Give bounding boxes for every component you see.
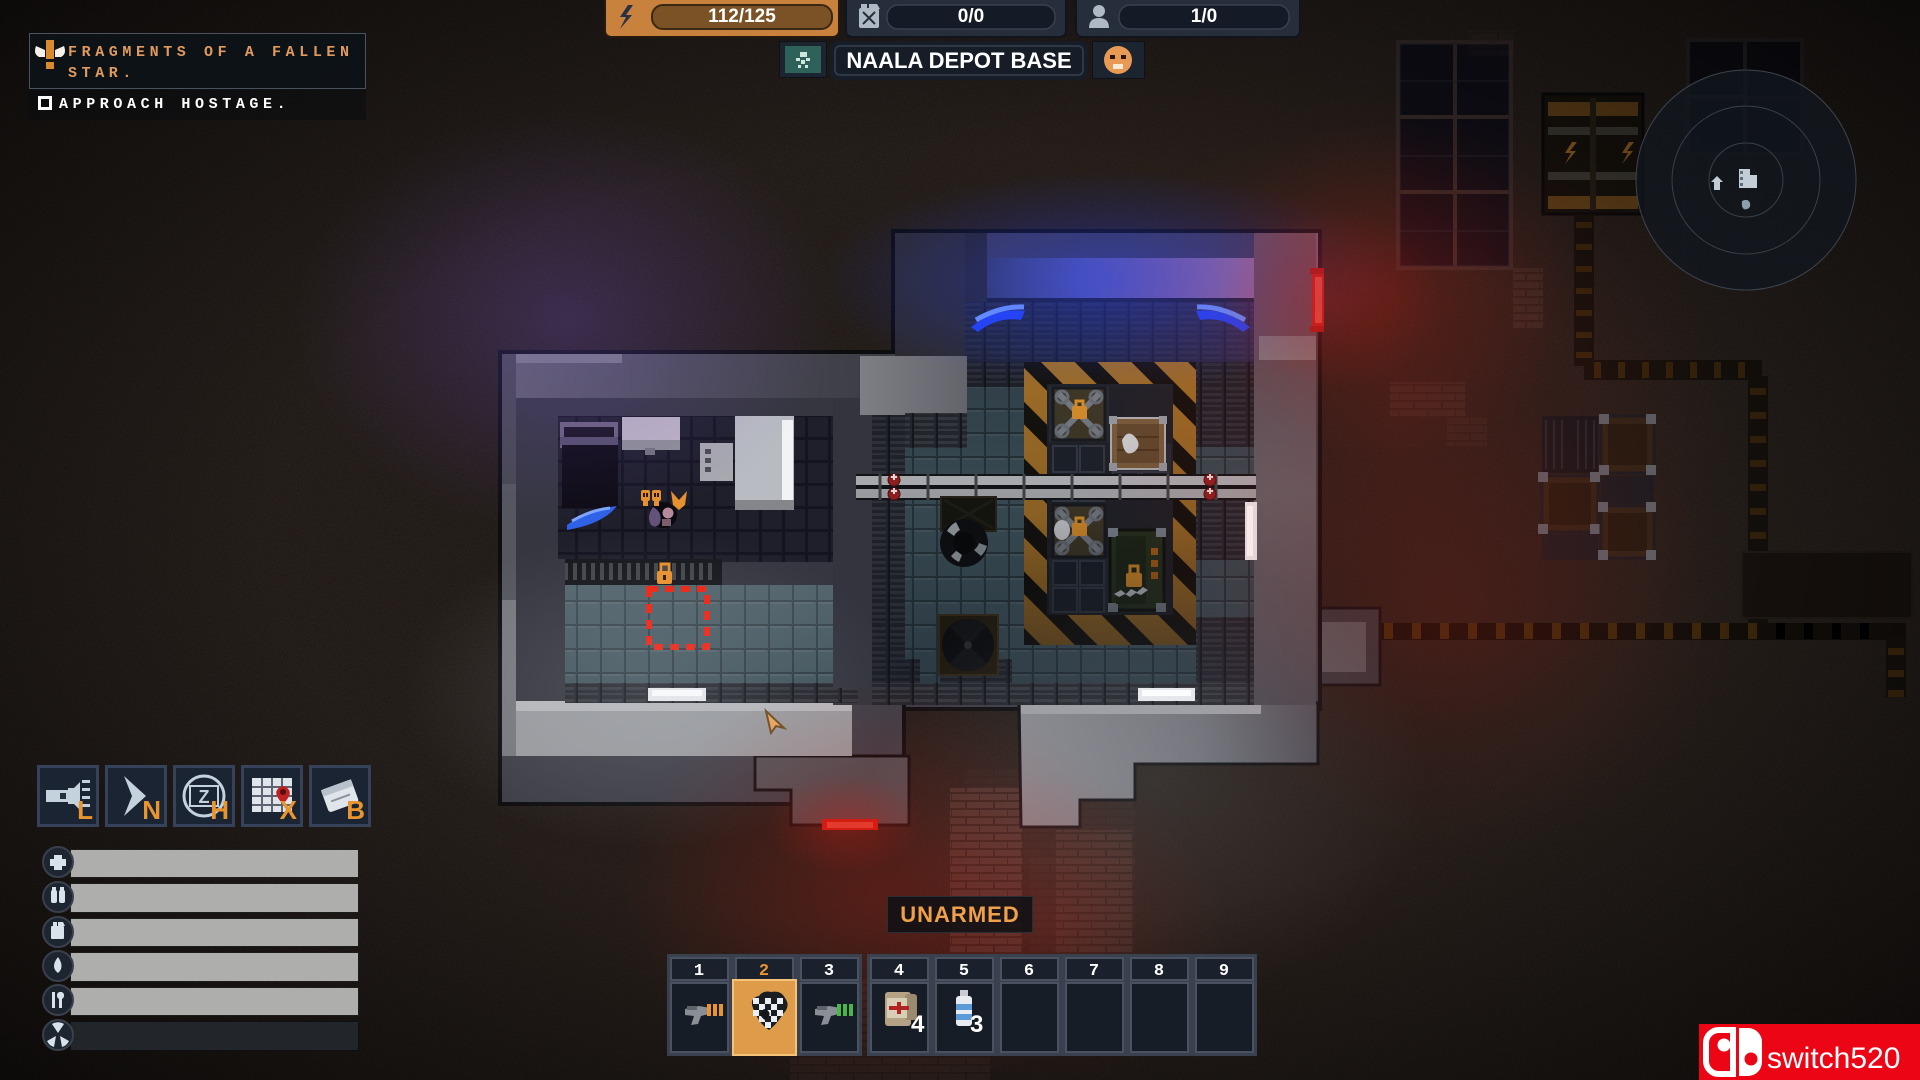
svg-text:7: 7	[1089, 962, 1099, 981]
svg-text:1: 1	[694, 962, 704, 981]
svg-text:Z: Z	[199, 787, 210, 807]
svg-text:4: 4	[894, 962, 904, 981]
svg-text:9: 9	[1219, 962, 1229, 981]
svg-text:6: 6	[1024, 962, 1034, 981]
svg-text:5: 5	[959, 962, 969, 981]
svg-text:8: 8	[1154, 962, 1164, 981]
svg-text:4: 4	[911, 1011, 925, 1038]
svg-text:3: 3	[824, 962, 834, 981]
svg-text:2: 2	[759, 962, 769, 981]
svg-text:switch520: switch520	[1767, 1042, 1900, 1075]
svg-text:3: 3	[970, 1011, 983, 1038]
